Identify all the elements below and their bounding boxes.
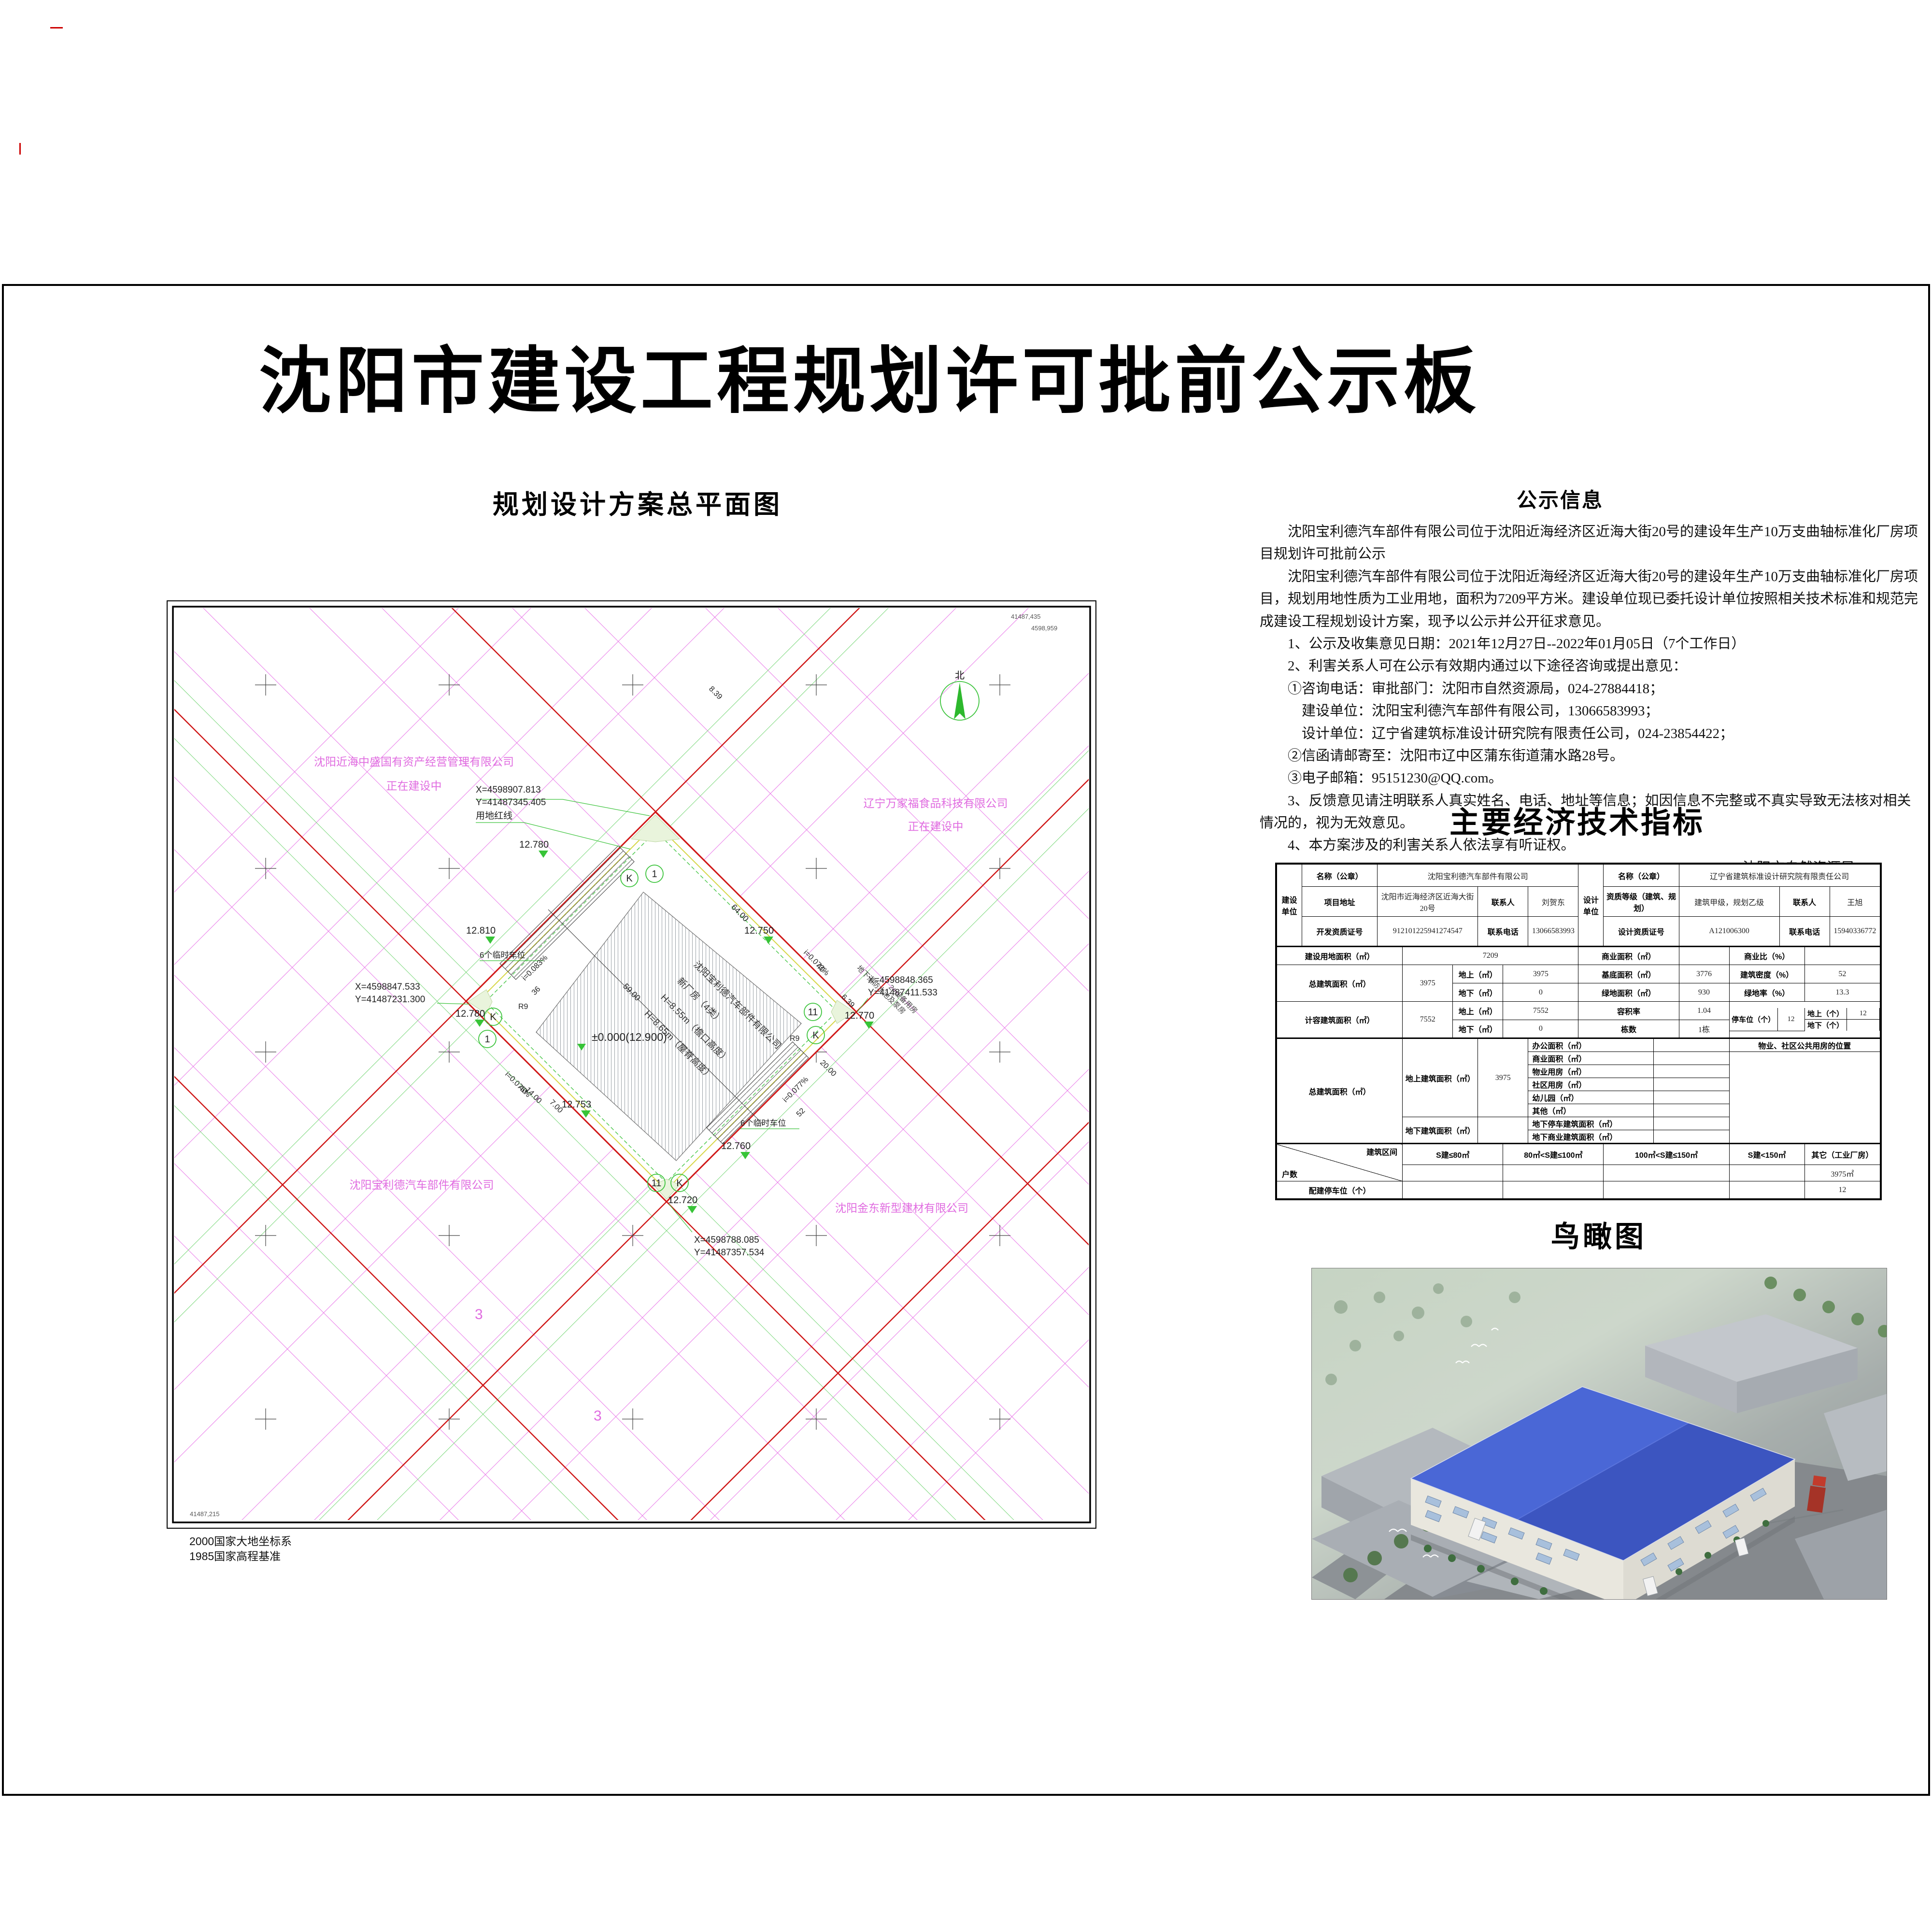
coord-bottom-y: Y=41487357.534 [694, 1248, 765, 1258]
cell-jrds-value: 7552 [1503, 1002, 1578, 1020]
cell-hs-label: 户数 [1282, 1168, 1297, 1179]
cell-dphone-label: 联系电话 [1779, 917, 1830, 947]
cell-pj-v1 [1403, 1181, 1503, 1199]
elevation-label: 12.780 [455, 1009, 485, 1019]
node-letter: 1 [484, 1034, 490, 1045]
cell-rjl-value: 1.04 [1679, 1002, 1729, 1020]
cell-tcwds-value: 12 [1847, 1008, 1879, 1020]
cell-rjl-label: 容积率 [1578, 1002, 1679, 1020]
node-letter: 11 [808, 1007, 818, 1018]
cell-dx-label: 地下（㎡） [1453, 983, 1503, 1002]
cell-sy-label: 商业面积（㎡） [1528, 1052, 1654, 1065]
cell-tcw-value: 12 [1777, 1008, 1804, 1031]
cell-dongshu-label: 栋数 [1578, 1020, 1679, 1038]
cell-hs-v3 [1604, 1165, 1729, 1181]
company-status-tl: 正在建设中 [386, 780, 442, 792]
notice-line: ②信函请邮寄至：沈阳市辽中区蒲东街道蒲水路28号。 [1260, 745, 1922, 767]
cell-syc-value [1679, 947, 1729, 965]
elevation-label: 12.780 [519, 839, 549, 850]
notice-line: ③电子邮箱：95151230@QQ.com。 [1260, 767, 1922, 789]
cell-syb-label: 商业比（%） [1729, 947, 1804, 965]
notice-paragraphs: 沈阳宝利德汽车部件有限公司位于沈阳近海经济区近海大街20号的建设年生产10万支曲… [1260, 521, 1922, 902]
cell-hs-v2 [1503, 1165, 1604, 1181]
notice-line: 沈阳宝利德汽车部件有限公司位于沈阳近海经济区近海大街20号的建设年生产10万支曲… [1260, 521, 1922, 566]
cell-jsyd-value: 7209 [1403, 947, 1578, 965]
cell-dx-value: 0 [1503, 983, 1578, 1002]
page-title: 沈阳市建设工程规划许可批前公示板 [97, 323, 1642, 427]
notice-line: 建设单位：沈阳宝利德汽车部件有限公司，13066583993； [1260, 700, 1922, 722]
cell-tcwdx-value [1847, 1020, 1879, 1031]
cell-sq-value [1654, 1078, 1729, 1091]
site-plan-title: 规划设计方案总平面图 [493, 483, 782, 521]
cell-hs-v1 [1403, 1165, 1503, 1181]
cell-ds-label: 地上（㎡） [1453, 965, 1503, 983]
cell-range2: 80㎡<S建≤100㎡ [1503, 1144, 1604, 1165]
cell-dcert-label: 设计资质证号 [1604, 917, 1679, 947]
registration-mark [19, 143, 21, 155]
cell-dsjz-label: 地上建筑面积（㎡） [1403, 1038, 1478, 1117]
cell-wypos-label: 物业、社区公共用房的位置 [1729, 1038, 1880, 1052]
notice-title: 公示信息 [1256, 484, 1864, 513]
parking-note-se: 6个临时车位 [740, 1119, 786, 1128]
cell-tcw-label: 停车位（个） [1730, 1008, 1777, 1031]
cell-jzmd-label: 建筑密度（%） [1729, 965, 1804, 983]
frame-ref-bl: 41487,215 [190, 1510, 219, 1518]
cell-wy-label: 物业用房（㎡） [1528, 1065, 1654, 1078]
cell-dcontact-value: 王旭 [1830, 887, 1880, 917]
cell-jrdx-label: 地下（㎡） [1453, 1020, 1503, 1038]
red-line-label: 用地红线 [476, 810, 512, 821]
cell-dxjz-value [1478, 1117, 1528, 1144]
cell-jzmd-value: 52 [1804, 965, 1880, 983]
cell-syb-value [1804, 947, 1880, 965]
notice-line: 沈阳宝利德汽车部件有限公司位于沈阳近海经济区近海大街20号的建设年生产10万支曲… [1260, 566, 1922, 633]
cell-syc-label: 商业面积（㎡） [1578, 947, 1679, 965]
elevation-label: 12.760 [721, 1141, 751, 1151]
node-letter: K [626, 873, 633, 884]
cell-jd-value: 3776 [1679, 965, 1729, 983]
cell-block-label: 总建筑面积（㎡） [1277, 1038, 1403, 1144]
parking-note-nw: 6个临时车位 [480, 951, 525, 960]
parking-block: 停车位（个） 12 地上（个） 12 地下（个） [1729, 1002, 1880, 1038]
cell-dcontact-label: 联系人 [1779, 887, 1830, 917]
cell-pj-label: 配建停车位（个） [1277, 1181, 1403, 1199]
cell-ds-value: 3975 [1503, 965, 1578, 983]
site-level-label: ±0.000(12.900) [592, 1031, 667, 1043]
registration-mark [50, 27, 63, 28]
cell-sq-label: 社区用房（㎡） [1528, 1078, 1654, 1091]
parcel-number: 3 [594, 1408, 602, 1424]
cell-dxsy-value [1654, 1130, 1729, 1144]
coord-top-y: Y=41487345.405 [476, 797, 546, 808]
cell-qt-value [1654, 1104, 1729, 1117]
notice-line: ①咨询电话：审批部门：沈阳市自然资源局，024-27884418； [1260, 678, 1922, 700]
cell-wy-value [1654, 1065, 1729, 1078]
radius-label: R9 [790, 1035, 800, 1043]
cell-pj-v4 [1729, 1181, 1804, 1199]
node-letter: 1 [652, 869, 657, 880]
notice-line: 设计单位：辽宁省建筑标准设计研究院有限责任公司，024-23854422； [1260, 723, 1922, 745]
cell-qt-label: 其他（㎡） [1528, 1104, 1654, 1117]
radius-label: R9 [518, 1003, 528, 1011]
cell-cert-label: 开发资质证号 [1302, 917, 1378, 947]
cell-ldl-value: 13.3 [1804, 983, 1880, 1002]
cell-addr-value: 沈阳市近海经济区近海大街20号 [1378, 887, 1478, 917]
birdview-title: 鸟瞰图 [1311, 1213, 1886, 1255]
cell-ld-value: 930 [1679, 983, 1729, 1002]
north-label: 北 [955, 670, 965, 681]
cell-ld-label: 绿地面积（㎡） [1578, 983, 1679, 1002]
frame-ref-tr1: 41487,435 [1011, 613, 1040, 620]
cell-jsyd-label: 建设用地面积（㎡） [1277, 947, 1403, 965]
coord-left-y: Y=41487231.300 [355, 994, 425, 1005]
company-label-br: 沈阳金东新型建材有限公司 [835, 1202, 968, 1214]
elevation-label: 12.753 [562, 1099, 591, 1110]
cell-phone-value: 13066583993 [1528, 917, 1578, 947]
notice-line: 1、公示及收集意见日期：2021年12月27日--2022年01月05日（7个工… [1260, 633, 1922, 655]
notice-line: 2、利害关系人可在公示有效期内通过以下途径咨询或提出意见： [1260, 655, 1922, 677]
indicators-table: 建设单位 名称（公章） 沈阳宝利德汽车部件有限公司 设计单位 名称（公章） 辽宁… [1275, 863, 1882, 1200]
elevation-label: 12.770 [845, 1010, 874, 1021]
cell-jr-label: 计容建筑面积（㎡） [1277, 1002, 1403, 1038]
cell-jsdw: 建设单位 [1277, 865, 1302, 947]
cell-sjdw: 设计单位 [1578, 865, 1604, 947]
cell-dxtc-label: 地下停车建筑面积（㎡） [1528, 1117, 1654, 1130]
company-label-tr: 辽宁万家福食品科技有限公司 [864, 797, 1008, 810]
company-label-left: 沈阳宝利德汽车部件有限公司 [350, 1179, 494, 1191]
cell-jr-value: 7552 [1403, 1002, 1453, 1038]
cell-dongshu-value: 1栋 [1679, 1020, 1729, 1038]
node-letter: 11 [652, 1178, 662, 1189]
cell-dcert-value: A121006300 [1679, 917, 1779, 947]
cell-dxjz-label: 地下建筑面积（㎡） [1403, 1117, 1478, 1144]
cell-jd-label: 基底面积（㎡） [1578, 965, 1679, 983]
cell-sy-value [1654, 1052, 1729, 1065]
cell-range3: 100㎡<S建≤150㎡ [1604, 1144, 1729, 1165]
coord-bottom-x: X=4598788.085 [694, 1235, 759, 1245]
cell-contact-value: 刘贺东 [1528, 887, 1578, 917]
cell-name-value: 沈阳宝利德汽车部件有限公司 [1378, 865, 1578, 887]
cell-dphone-value: 15940336772 [1830, 917, 1880, 947]
company-label-tl: 沈阳近海中盛国有资产经营管理有限公司 [314, 755, 514, 768]
cell-yey-label: 幼儿园（㎡） [1528, 1091, 1654, 1104]
node-letter: K [676, 1178, 683, 1189]
datum-line-2: 1985国家高程基准 [189, 1549, 292, 1564]
coord-left-x: X=4598847.533 [355, 982, 420, 992]
datum-note: 2000国家大地坐标系 1985国家高程基准 [189, 1534, 292, 1564]
cell-zjz-value: 3975 [1403, 965, 1453, 1002]
cell-phone-label: 联系电话 [1478, 917, 1528, 947]
parcel-number: 3 [475, 1307, 483, 1322]
elevation-label: 12.720 [668, 1195, 697, 1206]
cell-pj-v2 [1503, 1181, 1604, 1199]
elevation-label: 12.750 [744, 925, 774, 936]
node-letter: K [490, 1012, 497, 1023]
node-letter: K [812, 1030, 819, 1041]
birdview-rendering [1311, 1268, 1887, 1600]
cell-bg-label: 办公面积（㎡） [1528, 1038, 1654, 1052]
site-plan: 北 沈阳近海中盛国有资产经营管理有限公司 正在建设中 辽宁万家福食品科技有限公司… [167, 600, 1096, 1529]
cell-dname-value: 辽宁省建筑标准设计研究院有限责任公司 [1679, 865, 1880, 887]
cell-pj-v5: 12 [1804, 1181, 1880, 1199]
cell-pj-v3 [1604, 1181, 1729, 1199]
cell-dgrade-label: 资质等级（建筑、规划） [1604, 887, 1679, 917]
cell-qj-label: 建筑区间 [1366, 1146, 1397, 1157]
cell-dgrade-value: 建筑甲级，规划乙级 [1679, 887, 1779, 917]
cell-wypos-value [1729, 1052, 1880, 1144]
cell-cert-value: 912101225941274547 [1378, 917, 1478, 947]
cell-bg-value [1654, 1038, 1729, 1052]
cell-hs-v4 [1729, 1165, 1804, 1181]
cell-diagonal: 建筑区间 户数 [1277, 1144, 1403, 1181]
cell-ldl-label: 绿地率（%） [1729, 983, 1804, 1002]
cell-jrds-label: 地上（㎡） [1453, 1002, 1503, 1020]
indicators-title: 主要经济技术指标 [1275, 798, 1879, 841]
cell-jrdx-value: 0 [1503, 1020, 1578, 1038]
frame-ref-tr2: 4598,959 [1031, 625, 1057, 632]
coord-top-x: X=4598907.813 [476, 785, 541, 795]
cell-contact-label: 联系人 [1478, 887, 1528, 917]
cell-hs-v5: 3975㎡ [1804, 1165, 1880, 1181]
cell-zjz-label: 总建筑面积（㎡） [1277, 965, 1403, 1002]
cell-dname-label: 名称（公章） [1604, 865, 1679, 887]
cell-range1: S建≤80㎡ [1403, 1144, 1503, 1165]
cell-addr-label: 项目地址 [1302, 887, 1378, 917]
cell-name-label: 名称（公章） [1302, 865, 1378, 887]
cell-tcwds-label: 地上（个） [1804, 1008, 1847, 1020]
cell-dxtc-value [1654, 1117, 1729, 1130]
cell-yey-value [1654, 1091, 1729, 1104]
datum-line-1: 2000国家大地坐标系 [189, 1534, 292, 1549]
company-status-tr: 正在建设中 [908, 820, 964, 833]
cell-dxsy-label: 地下商业建筑面积（㎡） [1528, 1130, 1654, 1144]
cell-dsjz-value: 3975 [1478, 1038, 1528, 1117]
cell-range5: 其它（工业厂房） [1804, 1144, 1880, 1165]
cell-range4: S建<150㎡ [1729, 1144, 1804, 1165]
elevation-label: 12.810 [466, 925, 496, 936]
notice-board-page: { "page": { "title": "沈阳市建设工程规划许可批前公示板" … [0, 0, 1932, 1932]
cell-tcwdx-label: 地下（个） [1804, 1020, 1847, 1031]
